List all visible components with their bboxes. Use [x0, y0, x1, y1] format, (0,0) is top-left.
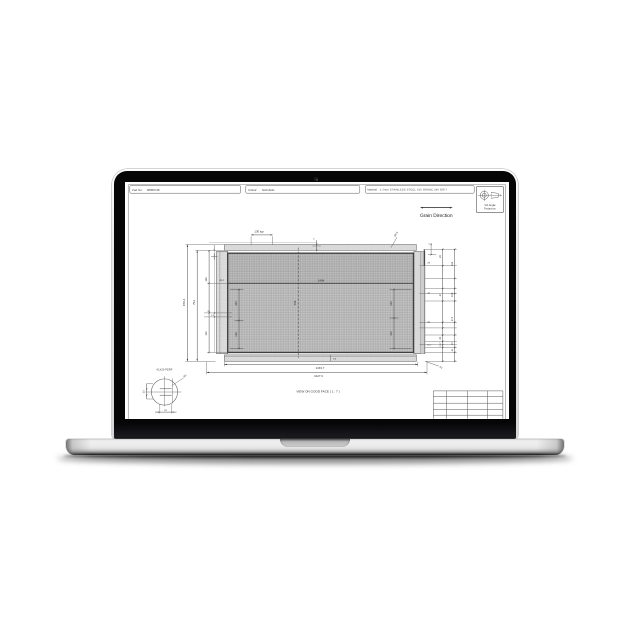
svg-text:252: 252: [390, 331, 393, 336]
svg-text:440: 440: [235, 301, 238, 306]
svg-text:Grain Direction: Grain Direction: [420, 213, 453, 219]
svg-text:150: 150: [205, 331, 208, 336]
svg-text:Part No:: Part No:: [132, 188, 142, 192]
svg-text:2: 2: [313, 237, 315, 240]
svg-text:61: 61: [164, 409, 167, 412]
svg-text:25: 25: [427, 321, 430, 324]
svg-text:06000798: 06000798: [147, 188, 160, 192]
svg-text:45: 45: [451, 348, 454, 351]
svg-text:26: 26: [207, 310, 210, 313]
svg-text:1.5mm STAINLESS STEEL 316 GRAD: 1.5mm STAINLESS STEEL 316 GRADE 240 GRIT: [380, 189, 448, 192]
svg-text:878.4: 878.4: [182, 298, 186, 306]
svg-text:23: 23: [427, 262, 430, 265]
svg-text:146: 146: [235, 332, 238, 337]
svg-text:Projection: Projection: [484, 207, 496, 210]
svg-text:Material:: Material:: [367, 189, 377, 192]
svg-text:Ø3: Ø3: [183, 374, 188, 379]
svg-text:NATURAL: NATURAL: [262, 188, 275, 192]
svg-text:104: 104: [451, 261, 454, 266]
svg-text:1449.7: 1449.7: [316, 366, 325, 370]
svg-text:47: 47: [427, 292, 430, 295]
svg-text:731: 731: [293, 300, 297, 305]
svg-text:1404: 1404: [318, 278, 325, 282]
svg-text:61X20 PERF: 61X20 PERF: [157, 368, 173, 371]
svg-text:21.7: 21.7: [439, 342, 442, 347]
svg-text:25: 25: [439, 336, 442, 339]
svg-text:1627.9: 1627.9: [314, 374, 323, 378]
svg-text:Colour:: Colour:: [248, 188, 257, 192]
svg-text:146: 146: [205, 277, 208, 282]
svg-text:40: 40: [451, 342, 454, 345]
svg-text:272: 272: [451, 316, 454, 321]
svg-text:2: 2: [428, 243, 431, 245]
svg-text:3.2: 3.2: [211, 314, 215, 317]
svg-text:794: 794: [192, 300, 196, 305]
svg-text:240: 240: [390, 301, 393, 306]
svg-text:20: 20: [143, 390, 146, 393]
svg-text:108: 108: [451, 292, 454, 297]
svg-text:130 typ: 130 typ: [254, 229, 264, 233]
svg-text:R3: R3: [439, 366, 444, 370]
svg-text:Ø5.5: Ø5.5: [394, 231, 400, 238]
svg-text:23: 23: [439, 255, 442, 258]
svg-text:VIEW ON GOOD FACE ( 1 : 7 ): VIEW ON GOOD FACE ( 1 : 7 ): [296, 389, 339, 393]
svg-text:49.2: 49.2: [219, 279, 224, 282]
